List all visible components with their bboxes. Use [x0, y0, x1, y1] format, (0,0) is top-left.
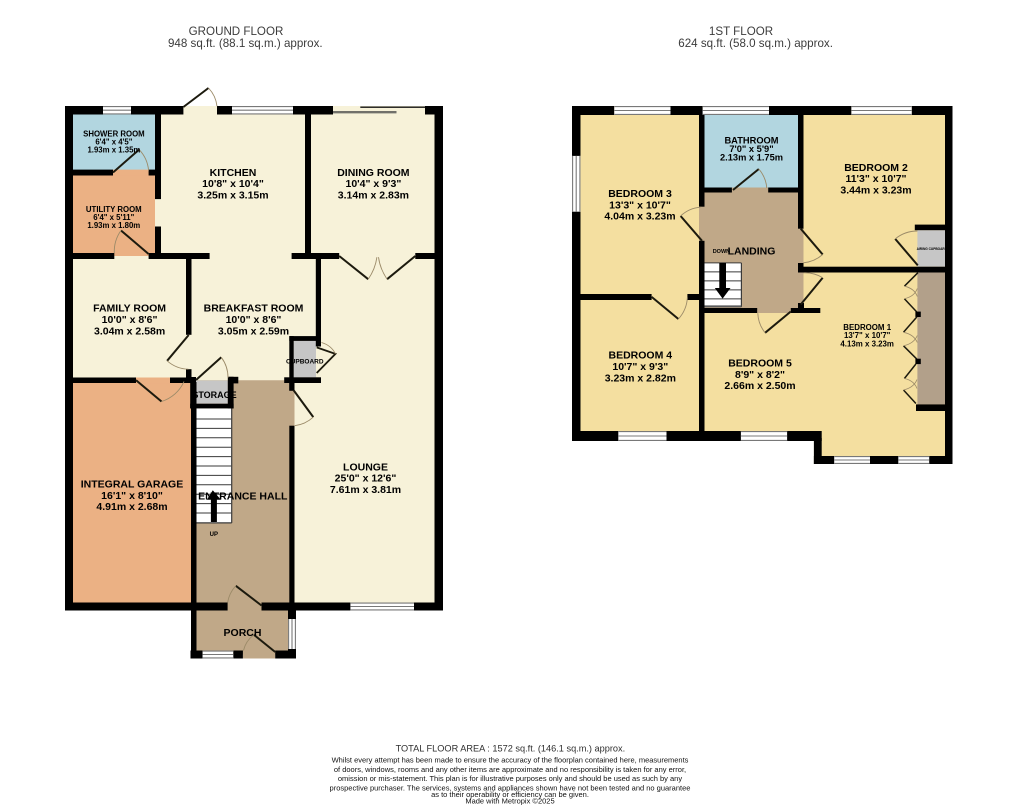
svg-text:4.04m x 3.23m: 4.04m x 3.23m — [604, 211, 675, 223]
svg-text:1.93m x 1.80m: 1.93m x 1.80m — [87, 221, 140, 230]
svg-text:TOTAL FLOOR AREA : 1572 sq.ft.: TOTAL FLOOR AREA : 1572 sq.ft. (146.1 sq… — [396, 744, 626, 754]
svg-text:10'7" x 9'3": 10'7" x 9'3" — [612, 361, 668, 373]
svg-text:omission or mis-statement. Thi: omission or mis-statement. This plan is … — [338, 774, 682, 783]
svg-text:BEDROOM 5: BEDROOM 5 — [728, 357, 792, 369]
svg-text:25'0" x 12'6": 25'0" x 12'6" — [335, 473, 397, 485]
svg-text:4.13m x 3.23m: 4.13m x 3.23m — [840, 339, 894, 348]
svg-text:of doors, windows, rooms and a: of doors, windows, rooms and any other i… — [334, 765, 686, 774]
svg-text:CUPBOARD: CUPBOARD — [286, 359, 324, 366]
svg-text:UP: UP — [210, 532, 218, 538]
svg-text:1.93m x 1.35m: 1.93m x 1.35m — [87, 146, 140, 155]
svg-text:2.13m x 1.75m: 2.13m x 1.75m — [720, 152, 783, 162]
svg-text:13'3" x 10'7": 13'3" x 10'7" — [609, 199, 671, 211]
svg-text:3.44m x 3.23m: 3.44m x 3.23m — [840, 185, 911, 197]
svg-text:LANDING: LANDING — [728, 246, 776, 258]
svg-text:2.66m x 2.50m: 2.66m x 2.50m — [724, 380, 795, 392]
svg-text:LOUNGE: LOUNGE — [343, 461, 388, 473]
svg-text:KITCHEN: KITCHEN — [210, 167, 257, 179]
svg-text:3.14m x 2.83m: 3.14m x 2.83m — [338, 189, 409, 201]
svg-text:DOWN: DOWN — [713, 249, 730, 255]
svg-text:3.23m x 2.82m: 3.23m x 2.82m — [605, 372, 676, 384]
svg-text:AIRING CUPBOARD: AIRING CUPBOARD — [917, 247, 948, 251]
svg-text:BEDROOM 4: BEDROOM 4 — [609, 350, 673, 362]
svg-text:10'0" x 8'6": 10'0" x 8'6" — [226, 314, 282, 326]
svg-text:8'9" x 8'2": 8'9" x 8'2" — [735, 369, 785, 381]
svg-text:ENTRANCE HALL: ENTRANCE HALL — [198, 491, 288, 503]
svg-text:3.04m x 2.58m: 3.04m x 2.58m — [94, 325, 165, 337]
svg-text:11'3" x 10'7": 11'3" x 10'7" — [845, 173, 906, 185]
svg-text:INTEGRAL GARAGE: INTEGRAL GARAGE — [81, 478, 183, 490]
svg-text:BREAKFAST ROOM: BREAKFAST ROOM — [204, 303, 304, 315]
svg-text:STORAGE: STORAGE — [192, 390, 236, 400]
svg-text:3.25m x 3.15m: 3.25m x 3.15m — [197, 189, 268, 201]
svg-text:PORCH: PORCH — [224, 627, 262, 639]
svg-text:FAMILY ROOM: FAMILY ROOM — [93, 303, 166, 315]
svg-text:7.61m x 3.81m: 7.61m x 3.81m — [330, 484, 401, 496]
svg-text:BEDROOM 3: BEDROOM 3 — [608, 188, 672, 200]
svg-text:4.91m x 2.68m: 4.91m x 2.68m — [96, 501, 167, 513]
svg-text:10'0" x 8'6": 10'0" x 8'6" — [102, 314, 158, 326]
svg-text:948 sq.ft. (88.1 sq.m.) approx: 948 sq.ft. (88.1 sq.m.) approx. — [168, 37, 323, 50]
svg-text:16'1" x 8'10": 16'1" x 8'10" — [101, 490, 163, 502]
svg-text:Whilst every attempt has been: Whilst every attempt has been made to en… — [332, 755, 689, 764]
svg-text:DINING ROOM: DINING ROOM — [337, 167, 410, 179]
svg-text:Made with Metropix ©2025: Made with Metropix ©2025 — [465, 797, 554, 806]
svg-text:624 sq.ft. (58.0 sq.m.) approx: 624 sq.ft. (58.0 sq.m.) approx. — [678, 37, 833, 50]
svg-text:BEDROOM 2: BEDROOM 2 — [844, 162, 908, 174]
svg-text:3.05m x 2.59m: 3.05m x 2.59m — [218, 325, 289, 337]
